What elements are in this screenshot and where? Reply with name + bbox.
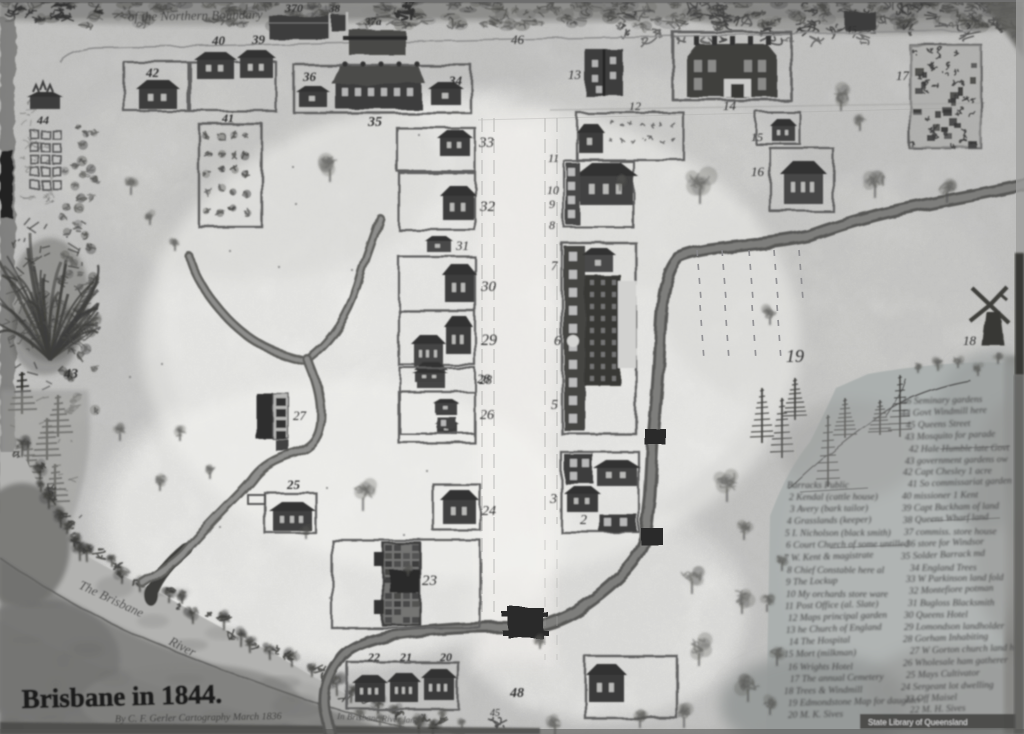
svg-text:8: 8	[549, 218, 555, 232]
svg-text:23: 23	[422, 573, 437, 589]
svg-text:6: 6	[554, 334, 561, 349]
svg-text:11: 11	[548, 151, 559, 165]
svg-text:42 Hale Humble late Govt: 42 Hale Humble late Govt	[909, 444, 1010, 455]
svg-text:9 The Lockup: 9 The Lockup	[786, 576, 838, 588]
svg-text:33: 33	[478, 135, 494, 151]
svg-text:43: 43	[63, 367, 78, 382]
svg-text:45: 45	[846, 24, 858, 36]
svg-text:46: 46	[511, 32, 525, 47]
svg-text:6 Court Church of some untille: 6 Court Church of some untilled	[786, 539, 909, 552]
svg-text:38: 38	[328, 3, 341, 15]
svg-text:20 M. K. Sives: 20 M. K. Sives	[788, 710, 844, 721]
svg-text:Brisbane in 1844.: Brisbane in 1844.	[21, 679, 222, 714]
svg-text:370: 370	[284, 1, 303, 15]
svg-text:17: 17	[896, 68, 910, 83]
svg-text:34 England Trees: 34 England Trees	[909, 563, 977, 574]
svg-text:31: 31	[455, 238, 469, 253]
svg-text:12: 12	[629, 99, 641, 113]
svg-text:46 Seminary gardens: 46 Seminary gardens	[902, 395, 983, 407]
svg-text:10: 10	[547, 183, 559, 197]
svg-text:30: 30	[480, 279, 497, 295]
svg-text:15: 15	[751, 130, 763, 144]
svg-text:24: 24	[482, 504, 496, 519]
svg-text:19: 19	[786, 346, 804, 366]
svg-text:3 Avery (bark tailor): 3 Avery (bark tailor)	[789, 503, 868, 515]
svg-text:3: 3	[549, 492, 557, 507]
svg-text:2: 2	[580, 513, 587, 528]
svg-text:of the Northern Boundary: of the Northern Boundary	[128, 7, 263, 24]
svg-text:13: 13	[568, 67, 582, 82]
svg-text:30 Queens Hotel: 30 Queens Hotel	[903, 610, 968, 621]
svg-text:8 Chief Constable here al: 8 Chief Constable here al	[787, 565, 885, 576]
svg-text:40 missioner 1 Kent: 40 missioner 1 Kent	[902, 490, 979, 502]
svg-text:34: 34	[448, 73, 463, 88]
svg-text:16 Wrights Hotel: 16 Wrights Hotel	[788, 662, 853, 673]
svg-text:18: 18	[963, 333, 977, 348]
svg-text:22: 22	[367, 650, 380, 664]
svg-text:5: 5	[551, 398, 558, 413]
svg-text:9: 9	[549, 197, 555, 211]
svg-text:29: 29	[481, 332, 497, 349]
svg-text:37a: 37a	[364, 16, 382, 28]
svg-text:State Library of Queensland: State Library of Queensland	[868, 718, 968, 727]
svg-text:14: 14	[723, 98, 737, 113]
svg-text:39: 39	[251, 32, 266, 47]
svg-text:20: 20	[439, 650, 452, 664]
svg-text:36: 36	[302, 69, 317, 84]
svg-text:2 Kendal (cattle house): 2 Kendal (cattle house)	[789, 492, 878, 503]
svg-text:26: 26	[480, 408, 494, 423]
svg-text:42 Capt Chesley 1 acre: 42 Capt Chesley 1 acre	[903, 467, 992, 479]
svg-text:29 Lomondson landholder: 29 Lomondson landholder	[904, 622, 1005, 633]
svg-text:48: 48	[509, 686, 524, 701]
svg-text:45 Queens Street: 45 Queens Street	[906, 419, 971, 431]
svg-text:18 Trees & Windmill: 18 Trees & Windmill	[784, 685, 863, 697]
svg-text:28: 28	[477, 371, 491, 386]
svg-text:5 I. Nicholson (black smith): 5 I. Nicholson (black smith)	[785, 528, 891, 539]
svg-text:25: 25	[286, 477, 301, 492]
svg-text:35: 35	[367, 115, 382, 130]
svg-text:7: 7	[551, 258, 558, 273]
svg-text:15 Mort (milkman): 15 Mort (milkman)	[784, 647, 857, 660]
svg-text:44: 44	[36, 113, 49, 127]
svg-text:4 Grasslands (keeper): 4 Grasslands (keeper)	[787, 514, 872, 527]
svg-text:42: 42	[145, 65, 160, 80]
svg-text:41: 41	[221, 111, 234, 125]
svg-text:40: 40	[211, 33, 226, 48]
svg-text:31 Bugloss Blacksmith: 31 Bugloss Blacksmith	[907, 598, 995, 609]
svg-text:27: 27	[293, 408, 307, 423]
svg-text:10 My orchards store ware: 10 My orchards store ware	[786, 590, 888, 600]
svg-text:32: 32	[479, 199, 496, 215]
svg-text:16: 16	[751, 164, 765, 179]
svg-text:21: 21	[399, 650, 412, 664]
